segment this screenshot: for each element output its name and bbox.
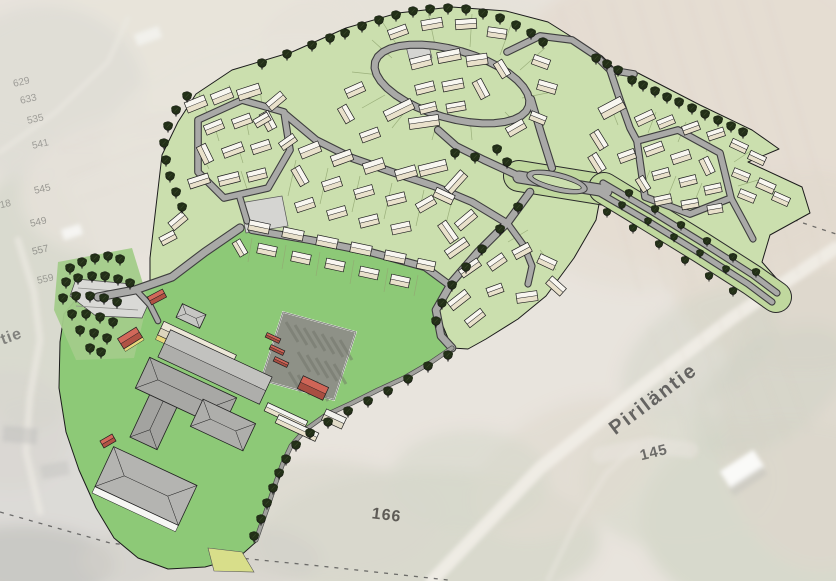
tree-crown-lobe <box>327 418 333 424</box>
house <box>487 27 507 40</box>
tree-crown-lobe <box>266 499 272 505</box>
tree-crown-lobe <box>632 225 637 230</box>
tree-crown-lobe <box>104 272 110 278</box>
tree-crown-lobe <box>658 241 663 246</box>
tree-crown-lobe <box>119 255 125 261</box>
tree-crown-lobe <box>361 22 367 28</box>
tree-crown-lobe <box>447 4 453 10</box>
tree-crown-lobe <box>65 278 71 284</box>
tree-crown-lobe <box>654 206 659 211</box>
tree-crown-lobe <box>62 294 68 300</box>
tree-crown-lobe <box>755 269 760 274</box>
tree-crown-lobe <box>71 310 77 316</box>
tree-crown-lobe <box>309 429 315 435</box>
tree-crown-lobe <box>91 272 97 278</box>
tree-crown-lobe <box>367 397 373 403</box>
tree-crown-lobe <box>94 254 100 260</box>
tree-crown-lobe <box>465 263 471 269</box>
tree-crown-lobe <box>499 14 505 20</box>
tree-crown-lobe <box>704 110 710 116</box>
tree-crown-lobe <box>465 5 471 11</box>
tree-crown-lobe <box>106 334 112 340</box>
tree-crown-lobe <box>89 344 95 350</box>
tree-crown-lobe <box>496 145 502 151</box>
tree-crown-lobe <box>622 202 626 206</box>
tree-crown-lobe <box>165 156 171 162</box>
tree-crown-lobe <box>75 292 81 298</box>
tree-crown-lobe <box>163 139 169 145</box>
tree-crown-lobe <box>387 387 393 393</box>
tree-crown-lobe <box>112 318 118 324</box>
tree-crown-lobe <box>617 66 623 72</box>
tree-crown-lobe <box>77 274 83 280</box>
tree-crown-lobe <box>100 348 106 354</box>
tree-crown-lobe <box>260 515 266 521</box>
tree-crown-lobe <box>344 29 350 35</box>
tree-crown-lobe <box>515 21 521 27</box>
tree-crown-lobe <box>506 158 512 164</box>
tree-crown-lobe <box>285 455 291 461</box>
tree-crown-lobe <box>454 149 460 155</box>
tree-crown-lobe <box>499 225 505 231</box>
tree-crown-lobe <box>93 329 99 335</box>
tree-crown-lobe <box>684 257 689 262</box>
tree-crown-lobe <box>642 81 648 87</box>
tree-crown-lobe <box>278 469 284 475</box>
tree-crown-lobe <box>708 273 713 278</box>
tree-crown-lobe <box>175 106 181 112</box>
house <box>455 18 477 29</box>
tree-crown-lobe <box>81 258 87 264</box>
tree-crown-lobe <box>606 209 611 214</box>
tree-crown-lobe <box>700 250 704 254</box>
tree-crown-lobe <box>378 16 384 22</box>
masterplan-visualization-image: Piriläntie145166tie629633535541545185495… <box>0 0 836 581</box>
tree-crown-lobe <box>654 87 660 93</box>
tree-crown-lobe <box>329 34 335 40</box>
screenshot-root: Piriläntie145166tie629633535541545185495… <box>0 0 836 581</box>
tree-crown-lobe <box>286 50 292 56</box>
tree-crown-lobe <box>732 288 737 293</box>
tree-crown-lobe <box>169 172 175 178</box>
street-label: 166 <box>371 505 403 525</box>
tree-crown-lobe <box>89 292 95 298</box>
tree-crown-lobe <box>261 59 267 65</box>
tree-crown-lobe <box>85 310 91 316</box>
tree-crown-lobe <box>674 234 678 238</box>
tree-crown-lobe <box>117 275 123 281</box>
tree-crown-lobe <box>530 29 536 35</box>
tree-crown-lobe <box>595 54 601 60</box>
tree-crown-lobe <box>69 264 75 270</box>
tree-crown-lobe <box>253 532 259 538</box>
tree-crown-lobe <box>481 245 487 251</box>
tree-crown-lobe <box>726 266 730 270</box>
tree-crown-lobe <box>691 104 697 110</box>
tree-crown-lobe <box>272 484 278 490</box>
tree-crown-lobe <box>666 93 672 99</box>
tree-crown-lobe <box>99 313 105 319</box>
tree-crown-lobe <box>347 407 353 413</box>
tree-crown-lobe <box>542 38 548 44</box>
tree-crown-lobe <box>412 7 418 13</box>
tree-crown-lobe <box>441 299 447 305</box>
tree-crown-lobe <box>717 116 723 122</box>
tree-crown-lobe <box>447 351 453 357</box>
tree-crown-lobe <box>129 279 135 285</box>
tree-crown-lobe <box>742 128 748 134</box>
tree-crown-lobe <box>311 41 317 47</box>
tree-crown-lobe <box>732 254 737 259</box>
tree-crown-lobe <box>628 190 633 195</box>
tree-crown-lobe <box>107 252 113 258</box>
tree-crown-lobe <box>186 92 192 98</box>
tree-crown-lobe <box>103 294 109 300</box>
tree-crown-lobe <box>427 362 433 368</box>
tree-crown-lobe <box>79 326 85 332</box>
tree-crown-lobe <box>395 11 401 17</box>
tree-crown-lobe <box>648 218 652 222</box>
tree-crown-lobe <box>678 98 684 104</box>
tree-crown-lobe <box>407 375 413 381</box>
tree-crown-lobe <box>181 203 187 209</box>
tree-crown-lobe <box>429 5 435 11</box>
tree-crown-lobe <box>295 441 301 447</box>
tree-crown-lobe <box>167 122 173 128</box>
tree-crown-lobe <box>175 188 181 194</box>
tree-crown-lobe <box>435 317 441 323</box>
tree-crown-lobe <box>116 298 122 304</box>
tree-crown-lobe <box>680 222 685 227</box>
tree-crown-lobe <box>482 9 488 15</box>
tree-crown-lobe <box>517 203 523 209</box>
tree-crown-lobe <box>706 238 711 243</box>
tree-crown-lobe <box>631 76 637 82</box>
tree-crown-lobe <box>451 281 457 287</box>
tree-crown-lobe <box>606 60 612 66</box>
tree-crown-lobe <box>474 153 480 159</box>
tree-crown-lobe <box>730 122 736 128</box>
